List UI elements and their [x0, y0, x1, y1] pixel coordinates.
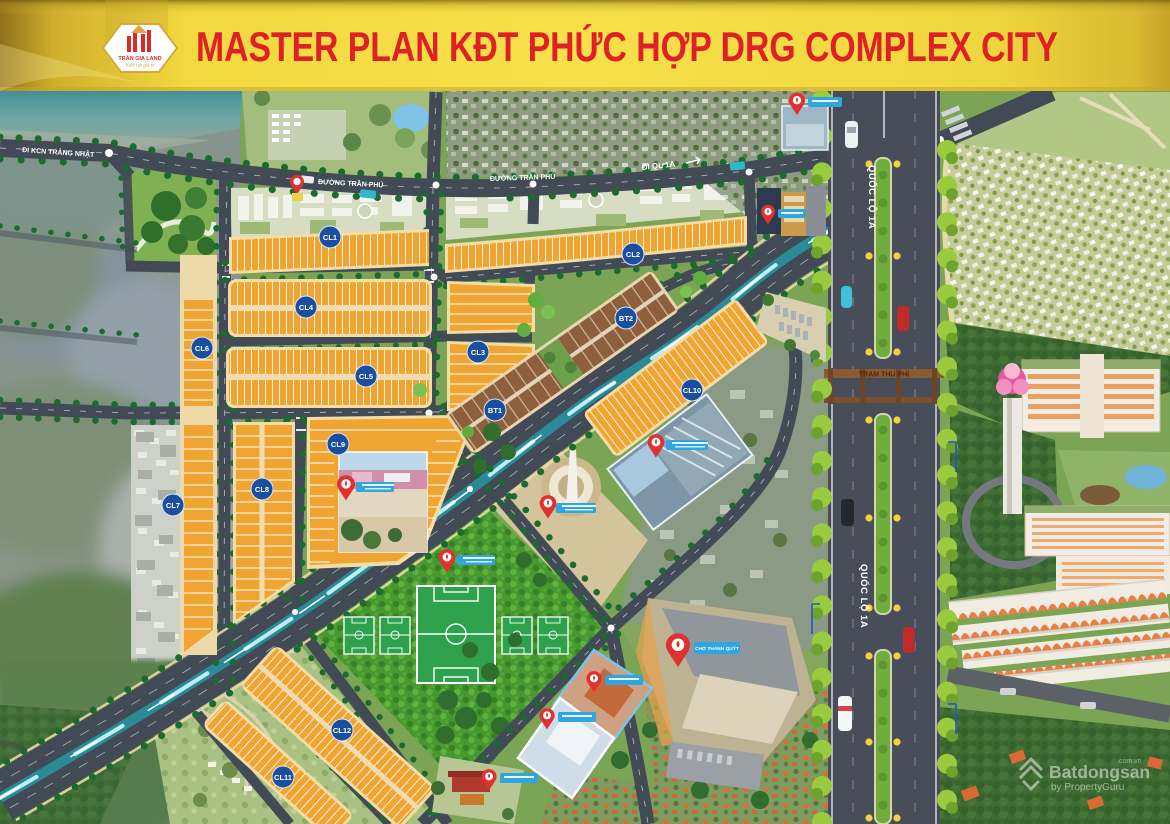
svg-text:Batdongsan: Batdongsan — [1049, 762, 1150, 782]
svg-text:CL11: CL11 — [274, 773, 292, 782]
svg-text:CL10: CL10 — [683, 386, 701, 395]
svg-text:CL4: CL4 — [299, 303, 314, 312]
svg-text:by PropertyGuru: by PropertyGuru — [1051, 782, 1124, 793]
svg-text:CL9: CL9 — [331, 440, 345, 449]
svg-text:CL2: CL2 — [626, 250, 640, 259]
svg-text:Kiến tạo giá trị: Kiến tạo giá trị — [126, 62, 156, 68]
svg-text:TRẦN GIA LAND: TRẦN GIA LAND — [118, 55, 161, 62]
svg-text:MASTER PLAN KĐT PHỨC HỢP DRG C: MASTER PLAN KĐT PHỨC HỢP DRG COMPLEX CIT… — [196, 22, 1058, 70]
svg-text:BT1: BT1 — [488, 406, 502, 415]
svg-text:CL8: CL8 — [255, 485, 269, 494]
svg-text:CL3: CL3 — [471, 348, 485, 357]
svg-text:TRẠM THU PHÍ: TRẠM THU PHÍ — [859, 370, 910, 379]
svg-text:.com.vn: .com.vn — [1117, 758, 1142, 765]
svg-text:CL5: CL5 — [359, 372, 373, 381]
svg-text:CL12: CL12 — [333, 726, 351, 735]
svg-text:QUỐC LỘ 1A: QUỐC LỘ 1A — [858, 564, 870, 628]
svg-text:CHỢ THANH QUÝT: CHỢ THANH QUÝT — [695, 645, 739, 652]
svg-text:CL6: CL6 — [195, 344, 209, 353]
svg-text:QUỐC LỘ 1A: QUỐC LỘ 1A — [866, 165, 878, 229]
svg-text:CL7: CL7 — [166, 501, 180, 510]
svg-text:CL1: CL1 — [323, 233, 337, 242]
svg-text:BT2: BT2 — [619, 314, 633, 323]
